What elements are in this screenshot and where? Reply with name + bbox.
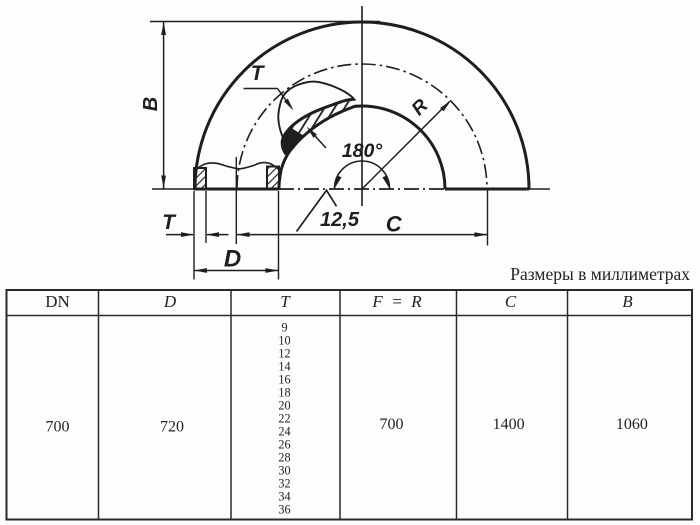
svg-text:34: 34 xyxy=(278,489,290,503)
svg-text:1060: 1060 xyxy=(616,416,648,433)
svg-text:B: B xyxy=(140,97,162,111)
svg-text:20: 20 xyxy=(278,398,290,412)
svg-text:DN: DN xyxy=(45,292,70,311)
svg-text:C: C xyxy=(505,292,517,311)
svg-text:T: T xyxy=(162,211,177,234)
svg-text:16: 16 xyxy=(278,372,290,386)
svg-text:12: 12 xyxy=(278,346,290,360)
svg-text:720: 720 xyxy=(160,419,184,436)
svg-text:D: D xyxy=(224,246,241,273)
svg-text:32: 32 xyxy=(278,476,290,490)
svg-text:D: D xyxy=(163,292,177,311)
svg-text:Размеры в миллиметрах: Размеры в миллиметрах xyxy=(510,264,690,284)
svg-text:B: B xyxy=(622,292,633,311)
svg-text:26: 26 xyxy=(278,437,290,451)
svg-text:36: 36 xyxy=(278,502,290,516)
svg-text:T: T xyxy=(280,292,291,311)
svg-text:9: 9 xyxy=(281,320,287,334)
svg-text:12,5: 12,5 xyxy=(320,209,360,231)
svg-text:28: 28 xyxy=(278,450,290,464)
svg-text:R: R xyxy=(408,95,433,120)
svg-text:180°: 180° xyxy=(342,140,383,162)
svg-text:14: 14 xyxy=(278,359,290,373)
svg-text:T: T xyxy=(251,62,266,85)
svg-text:C: C xyxy=(386,212,403,237)
svg-text:700: 700 xyxy=(380,416,404,433)
svg-text:30: 30 xyxy=(278,463,290,477)
svg-text:22: 22 xyxy=(278,411,290,425)
svg-text:18: 18 xyxy=(278,385,290,399)
svg-text:10: 10 xyxy=(278,333,290,347)
svg-text:F = R: F = R xyxy=(371,292,422,311)
svg-text:700: 700 xyxy=(46,419,70,436)
svg-text:1400: 1400 xyxy=(493,416,525,433)
svg-text:24: 24 xyxy=(278,424,290,438)
